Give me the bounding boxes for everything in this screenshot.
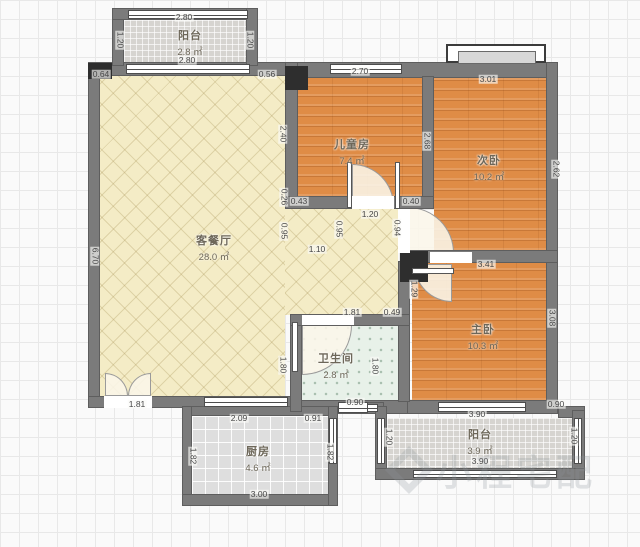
dim-label: 0.95 bbox=[280, 222, 289, 241]
floor-plan-canvas: 客餐厅28.0 ㎡儿童房7.4 ㎡次卧10.2 ㎡主卧10.3 ㎡卫生间2.8 … bbox=[0, 0, 640, 547]
room-name: 卫生间 bbox=[318, 350, 354, 366]
room-label: 儿童房7.4 ㎡ bbox=[334, 136, 370, 167]
room-name: 阳台 bbox=[177, 27, 202, 43]
room-area: 28.0 ㎡ bbox=[196, 249, 232, 263]
dim-label: 1.81 bbox=[343, 308, 362, 317]
dim-label: 0.26 bbox=[280, 188, 289, 207]
living-balcony-slider bbox=[126, 64, 250, 74]
dim-label: 0.40 bbox=[402, 197, 421, 206]
kids-door-panel bbox=[347, 162, 352, 208]
dim-label: 1.29 bbox=[410, 280, 419, 299]
room-name: 厨房 bbox=[245, 443, 270, 459]
dim-label: 0.90 bbox=[547, 400, 566, 409]
dim-label: 3.01 bbox=[479, 75, 498, 84]
kids-door-opening bbox=[352, 196, 394, 209]
dim-label: 2.80 bbox=[178, 56, 197, 65]
room-label: 厨房4.6 ㎡ bbox=[245, 443, 270, 474]
dim-label: 1.82 bbox=[189, 447, 198, 466]
dim-label: 1.80 bbox=[279, 356, 288, 375]
living-kitchen-slider bbox=[204, 397, 288, 407]
dim-label: 2.09 bbox=[230, 414, 249, 423]
wall-master-bath bbox=[398, 261, 410, 402]
dim-label: 1.82 bbox=[326, 443, 335, 462]
pillar-master-corner bbox=[400, 251, 428, 282]
room-label: 客餐厅28.0 ㎡ bbox=[196, 232, 232, 263]
dim-label: 3.08 bbox=[548, 309, 557, 328]
living-dining-floor bbox=[100, 76, 285, 396]
dim-label: 6.70 bbox=[91, 247, 100, 266]
dim-label: 2.62 bbox=[552, 160, 561, 179]
room-label: 次卧10.2 ㎡ bbox=[474, 152, 505, 183]
dim-label: 1.20 bbox=[361, 210, 380, 219]
dim-label: 0.64 bbox=[92, 70, 111, 79]
wall-right-exterior bbox=[546, 62, 558, 414]
dim-label: 2.70 bbox=[351, 67, 370, 76]
bathroom-door-panel bbox=[292, 322, 298, 372]
room-label: 卫生间2.8 ㎡ bbox=[318, 350, 354, 381]
room-area: 2.8 ㎡ bbox=[318, 367, 354, 381]
master-door-opening bbox=[430, 252, 472, 263]
room-area: 4.6 ㎡ bbox=[245, 460, 270, 474]
room-name: 阳台 bbox=[467, 426, 492, 442]
room-name: 主卧 bbox=[468, 321, 499, 337]
room-label: 主卧10.3 ㎡ bbox=[468, 321, 499, 352]
dim-label: 1.10 bbox=[308, 245, 327, 254]
room-name: 次卧 bbox=[474, 152, 505, 168]
dim-label: 2.68 bbox=[423, 132, 432, 151]
bay-window-sill bbox=[458, 51, 536, 64]
room-label: 阳台3.9 ㎡ bbox=[467, 426, 492, 457]
dim-label: 0.91 bbox=[304, 414, 323, 423]
dim-label: 2.80 bbox=[175, 13, 194, 22]
dim-label: 1.20 bbox=[116, 31, 125, 50]
room-label: 阳台2.8 ㎡ bbox=[177, 27, 202, 58]
wall-left-exterior bbox=[88, 62, 100, 408]
room-area: 10.3 ㎡ bbox=[468, 338, 499, 352]
dim-label: 1.81 bbox=[128, 400, 147, 409]
dim-label: 3.90 bbox=[468, 410, 487, 419]
dim-label: 0.95 bbox=[335, 220, 344, 239]
room-area: 10.2 ㎡ bbox=[474, 169, 505, 183]
dim-label: 0.94 bbox=[393, 219, 402, 238]
room-name: 儿童房 bbox=[334, 136, 370, 152]
room-name: 客餐厅 bbox=[196, 232, 232, 248]
pillar-kids-corner bbox=[285, 66, 308, 90]
dim-label: 0.49 bbox=[383, 308, 402, 317]
dim-label: 3.41 bbox=[477, 260, 496, 269]
dim-label: 1.20 bbox=[385, 428, 394, 447]
dim-label: 3.90 bbox=[471, 457, 490, 466]
dim-label: 0.90 bbox=[346, 398, 365, 407]
second-door-panel bbox=[395, 162, 400, 209]
balcony-bottom-window-bottom bbox=[413, 470, 557, 478]
dim-label: 1.20 bbox=[570, 427, 579, 446]
dim-label: 1.20 bbox=[246, 31, 255, 50]
dim-label: 1.80 bbox=[371, 357, 380, 376]
dim-label: 0.43 bbox=[290, 197, 309, 206]
master-door-panel bbox=[412, 268, 454, 274]
dim-label: 0.56 bbox=[258, 70, 277, 79]
dim-label: 3.00 bbox=[250, 490, 269, 499]
room-area: 7.4 ㎡ bbox=[334, 153, 370, 167]
dim-label: 2.40 bbox=[279, 125, 288, 144]
